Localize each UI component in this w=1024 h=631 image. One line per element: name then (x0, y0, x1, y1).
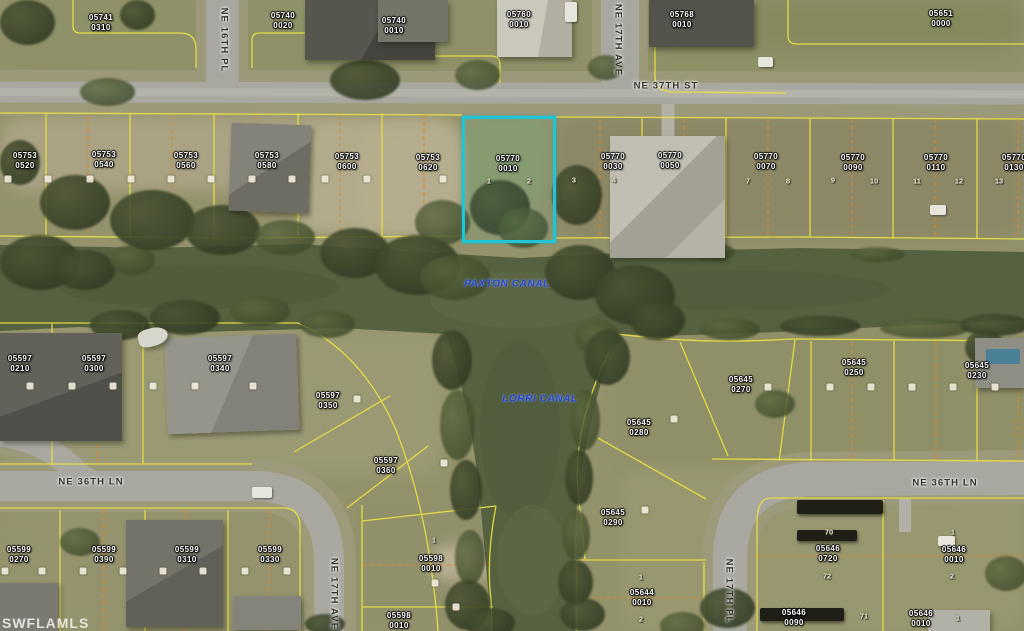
parcel-number-label: 056460090 (782, 608, 806, 628)
lot-number-marker: 12 (955, 177, 963, 186)
canal-name-label: PAXTON CANAL (464, 279, 550, 290)
parcel-number-label: 055970210 (8, 354, 32, 374)
parcel-number-label: 055990310 (175, 545, 199, 565)
lot-marker-chip (868, 384, 875, 391)
parcel-number-label: 057530620 (416, 153, 440, 173)
lot-marker-chip (453, 604, 460, 611)
lot-marker-chip (27, 383, 34, 390)
lot-marker-chip (120, 568, 127, 575)
parcel-number-label: 055980010 (387, 611, 411, 631)
lot-marker-chip (192, 383, 199, 390)
lot-marker-chip (150, 383, 157, 390)
parcel-number-label: 057530540 (92, 150, 116, 170)
lot-marker-chip (110, 383, 117, 390)
parcel-number-label: 057400020 (271, 11, 295, 31)
parcel-number-label: 057530580 (255, 151, 279, 171)
parcel-number-label: 056450280 (627, 418, 651, 438)
parcel-number-label: 057410310 (89, 13, 113, 33)
lot-marker-chip (250, 383, 257, 390)
lot-number-marker: 8 (786, 177, 790, 186)
lot-number-marker: 1 (432, 536, 436, 545)
lot-number-marker: 13 (995, 177, 1003, 186)
street-name-label: NE 36TH LN (58, 477, 123, 488)
lot-number-marker: 9 (831, 176, 835, 185)
lot-number-marker: 70 (825, 528, 833, 537)
lot-number-marker: 7 (746, 177, 750, 186)
lot-marker-chip (992, 384, 999, 391)
parcel-number-label: 057600010 (507, 10, 531, 30)
parcel-number-label: 057700070 (754, 152, 778, 172)
lot-marker-chip (671, 416, 678, 423)
street-name-label: NE 16TH PL (219, 8, 230, 73)
lot-marker-chip (909, 384, 916, 391)
parcel-number-label: 056450270 (729, 375, 753, 395)
parcel-number-label: 057700090 (841, 153, 865, 173)
lot-marker-chip (322, 176, 329, 183)
parcel-number-label: 056450230 (965, 361, 989, 381)
label-layer: 0574103100574000200574000100576000100576… (0, 0, 1024, 631)
lot-marker-chip (441, 460, 448, 467)
street-name-label: NE 37TH ST (634, 81, 699, 92)
lot-marker-chip (160, 568, 167, 575)
lot-number-marker: 3 (572, 176, 576, 185)
lot-marker-chip (432, 580, 439, 587)
lot-number-marker: 1 (956, 614, 960, 623)
lot-marker-chip (950, 384, 957, 391)
lot-marker-chip (765, 384, 772, 391)
street-name-label: NE 17TH PL (724, 559, 735, 624)
parcel-number-label: 056460010 (909, 609, 933, 629)
parcel-number-label: 057400010 (382, 16, 406, 36)
lot-marker-chip (45, 176, 52, 183)
lot-marker-chip (80, 568, 87, 575)
parcel-number-label: 055970300 (82, 354, 106, 374)
parcel-number-label: 056440010 (630, 588, 654, 608)
lot-number-marker: 71 (860, 612, 868, 621)
lot-marker-chip (289, 176, 296, 183)
parcel-number-label: 055990330 (258, 545, 282, 565)
parcel-number-label: 057700030 (601, 152, 625, 172)
parcel-number-label: 057530600 (335, 152, 359, 172)
lot-marker-chip (364, 176, 371, 183)
street-name-label: NE 17TH AVE (329, 558, 340, 630)
lot-marker-chip (642, 507, 649, 514)
lot-marker-chip (354, 396, 361, 403)
parcel-number-label: 057700010 (496, 154, 520, 174)
aerial-parcel-map: 0574103100574000200574000100576000100576… (0, 0, 1024, 631)
parcel-number-label: 057530520 (13, 151, 37, 171)
street-name-label: NE 36TH LN (912, 478, 977, 489)
lot-number-marker: 72 (823, 572, 831, 581)
parcel-number-label: 056460720 (816, 544, 840, 564)
lot-marker-chip (249, 176, 256, 183)
lot-marker-chip (39, 568, 46, 575)
parcel-number-label: 056450250 (842, 358, 866, 378)
lot-marker-chip (128, 176, 135, 183)
lot-marker-chip (200, 568, 207, 575)
canal-name-label: LORRI CANAL (502, 394, 577, 405)
lot-marker-chip (440, 176, 447, 183)
parcel-number-label: 055990390 (92, 545, 116, 565)
lot-marker-chip (5, 176, 12, 183)
parcel-number-label: 057700050 (658, 151, 682, 171)
parcel-number-label: 057700130 (1002, 153, 1024, 173)
lot-number-marker: 4 (612, 176, 616, 185)
lot-number-marker: 1 (487, 177, 491, 186)
lot-marker-chip (168, 176, 175, 183)
lot-marker-chip (87, 176, 94, 183)
parcel-number-label: 055970350 (316, 391, 340, 411)
lot-marker-chip (827, 384, 834, 391)
lot-number-marker: 11 (913, 177, 921, 186)
parcel-number-label: 057700110 (924, 153, 948, 173)
lot-marker-chip (69, 383, 76, 390)
parcel-number-label: 057680010 (670, 10, 694, 30)
lot-number-marker: 1 (951, 528, 955, 537)
parcel-number-label: 055970340 (208, 354, 232, 374)
parcel-number-label: 055990270 (7, 545, 31, 565)
watermark: SWFLAMLS (2, 615, 89, 631)
lot-marker-chip (242, 568, 249, 575)
parcel-number-label: 055980010 (419, 554, 443, 574)
lot-marker-chip (2, 568, 9, 575)
lot-number-marker: 1 (639, 573, 643, 582)
lot-number-marker: 2 (950, 572, 954, 581)
lot-marker-chip (208, 176, 215, 183)
lot-number-marker: 2 (639, 615, 643, 624)
street-name-label: NE 17TH AVE (613, 4, 624, 76)
lot-number-marker: 10 (870, 177, 878, 186)
parcel-number-label: 056460010 (942, 545, 966, 565)
lot-marker-chip (284, 568, 291, 575)
parcel-number-label: 056510000 (929, 9, 953, 29)
parcel-number-label: 055970360 (374, 456, 398, 476)
parcel-number-label: 057530560 (174, 151, 198, 171)
lot-number-marker: 2 (527, 177, 531, 186)
parcel-number-label: 056450290 (601, 508, 625, 528)
